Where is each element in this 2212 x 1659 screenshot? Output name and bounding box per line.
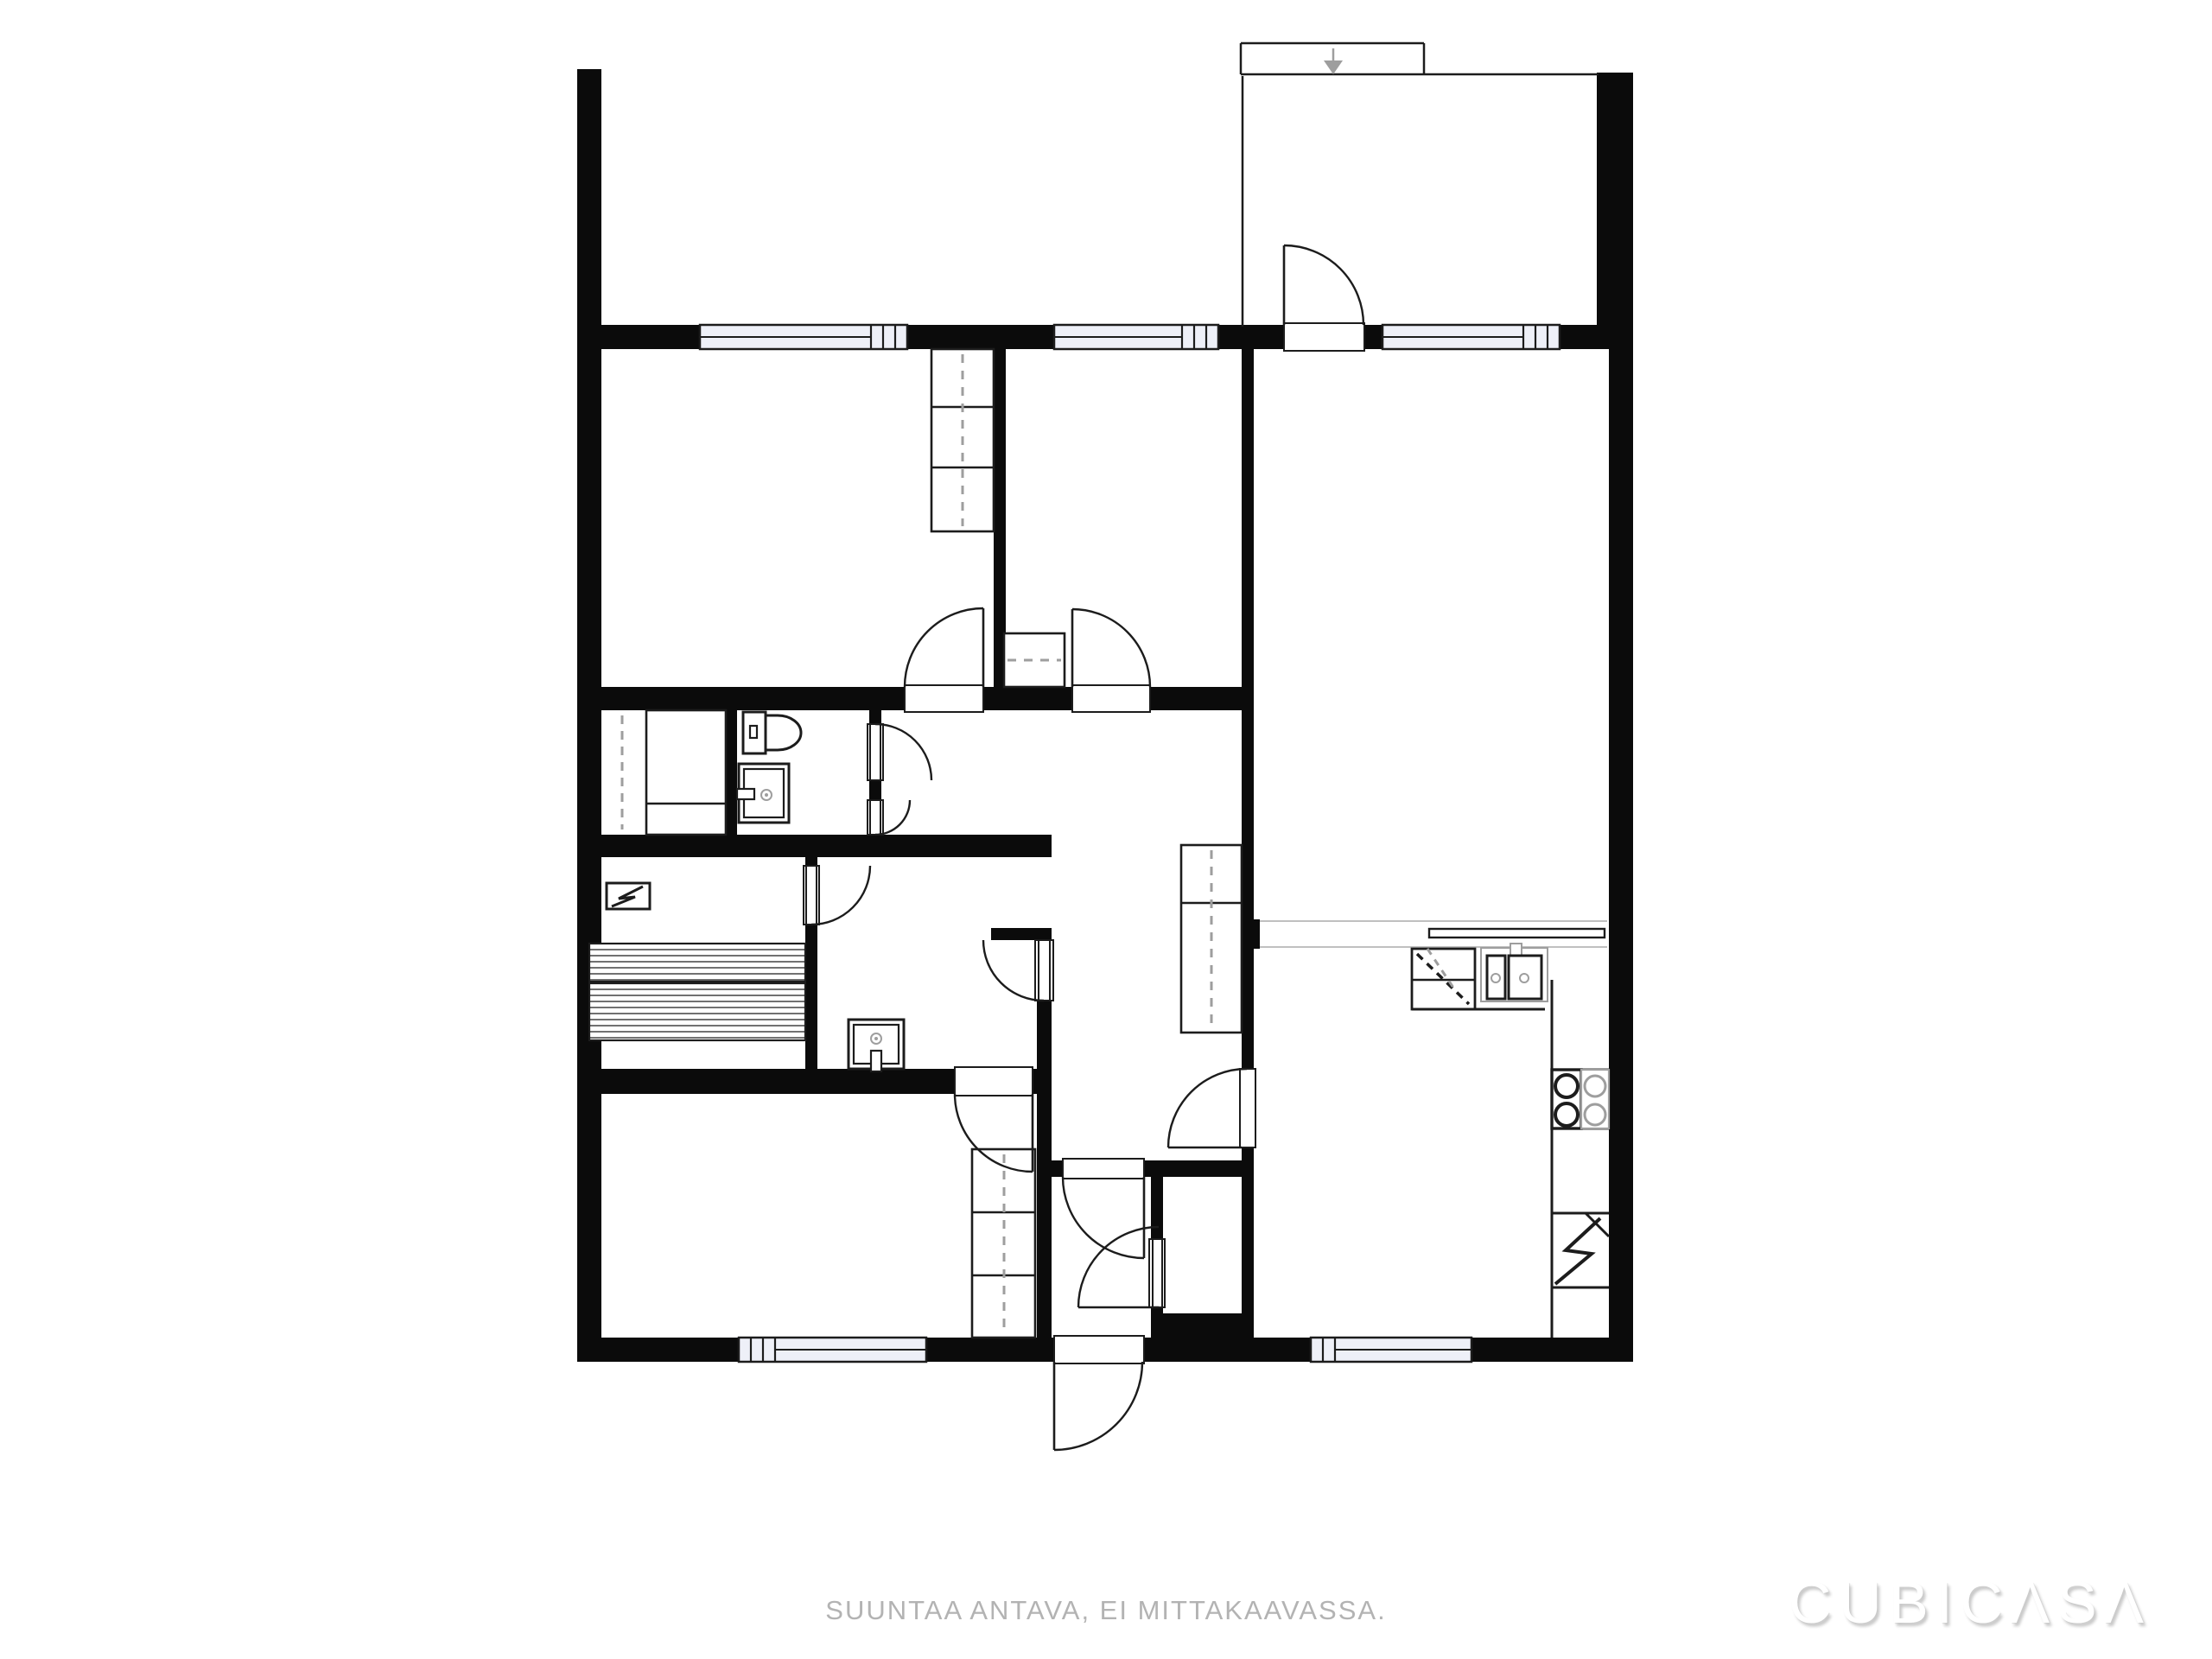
door-sill [1072,685,1150,712]
wall [991,928,1052,940]
wall [983,687,1072,710]
wall [1037,1094,1052,1338]
door-sill [1063,1159,1144,1179]
door-bedroom1-swing [905,608,983,687]
door-sill [1240,1069,1255,1147]
door-leaf [1153,1239,1162,1307]
wall [577,835,1052,857]
toilet-button [750,726,757,738]
disclaimer-text: SUUNTAA ANTAVA, EI MITTAKAAVASSA. [825,1595,1386,1626]
wall [926,1338,1054,1362]
kitchen-sink-basin-right [1509,956,1541,999]
wall [577,1069,955,1094]
washroom-sink-faucet [871,1051,881,1071]
wall [1150,687,1252,710]
circle [765,793,768,797]
door-leaf [870,800,880,835]
burner [1585,1104,1605,1125]
door-sauna-swing [811,866,870,925]
wall [1218,325,1284,349]
wall [1471,1338,1633,1362]
burner [1585,1076,1605,1096]
appliance-bolt [1555,1218,1600,1284]
door-leaf [806,866,817,925]
wall [1151,1177,1163,1239]
wall [1364,325,1382,349]
wall [869,780,881,800]
wall [1052,1160,1063,1177]
wall [805,925,817,1069]
brand-logo: CUBICΛSΛ [1789,1569,2152,1637]
wall [869,710,881,724]
balcony-arrow-head [1324,60,1343,74]
kitchen-sink-basin-left [1487,956,1505,999]
wall [577,69,601,1362]
toilet-bowl [766,715,801,750]
wall [601,325,700,349]
door-sill [955,1067,1033,1096]
circle [874,1037,878,1040]
kitchen-bar [1429,929,1605,938]
door-sill [1284,323,1364,351]
floorplan-page: SUUNTAA ANTAVA, EI MITTAKAAVASSA. CUBICΛ… [0,0,2212,1659]
wall [601,687,905,710]
door-entrance-swing [1054,1362,1142,1450]
door-hall-living-swing [1168,1069,1247,1147]
wall [601,1338,739,1362]
wall [1252,919,1260,949]
door-bedroom2-top-swing [1072,609,1150,687]
door-leaf [1039,940,1050,1001]
door-sill [1054,1336,1144,1363]
wall [805,857,817,866]
bathroom-sink-faucet [737,789,754,799]
door-leaf [870,724,880,780]
wall [1151,1313,1254,1362]
burner [1555,1103,1578,1126]
door-sill [905,685,983,712]
bathroom-cabinet [646,710,726,835]
wall [907,325,1054,349]
line [1586,1213,1609,1236]
wall [1144,1160,1254,1177]
floor-plan [0,0,2212,1659]
wall [726,710,737,835]
wall [1609,73,1633,1362]
wall [1037,1001,1052,1094]
door-balcony-swing [1284,245,1363,325]
door-vestibule-swing [1063,1177,1144,1258]
burner [1555,1075,1578,1097]
wall [1597,73,1609,328]
wall [1242,349,1254,1069]
